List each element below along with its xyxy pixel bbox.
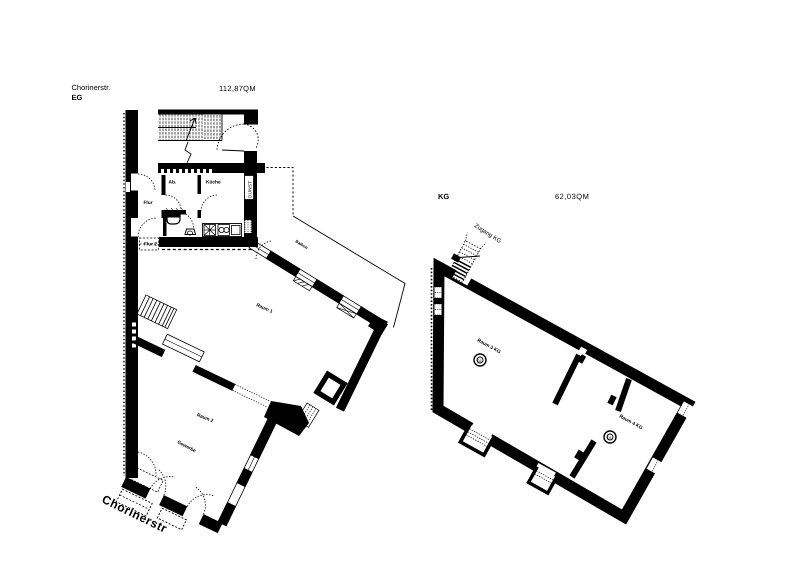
svg-text:Küche: Küche — [206, 180, 221, 186]
svg-text:D1: D1 — [477, 359, 482, 363]
svg-text:DUNST: DUNST — [248, 181, 253, 198]
svg-text:Chorinerstr.: Chorinerstr. — [72, 83, 111, 92]
svg-text:EG: EG — [72, 93, 83, 102]
svg-text:62,03QM: 62,03QM — [555, 192, 589, 201]
svg-text:KG: KG — [438, 192, 449, 201]
svg-text:Flur: Flur — [144, 200, 153, 206]
svg-text:Ab.: Ab. — [169, 180, 177, 186]
svg-text:Flur 2: Flur 2 — [144, 242, 157, 248]
svg-text:D1: D1 — [607, 436, 612, 440]
svg-text:N.N.: N.N. — [167, 241, 175, 246]
svg-text:112,87QM: 112,87QM — [219, 84, 256, 93]
